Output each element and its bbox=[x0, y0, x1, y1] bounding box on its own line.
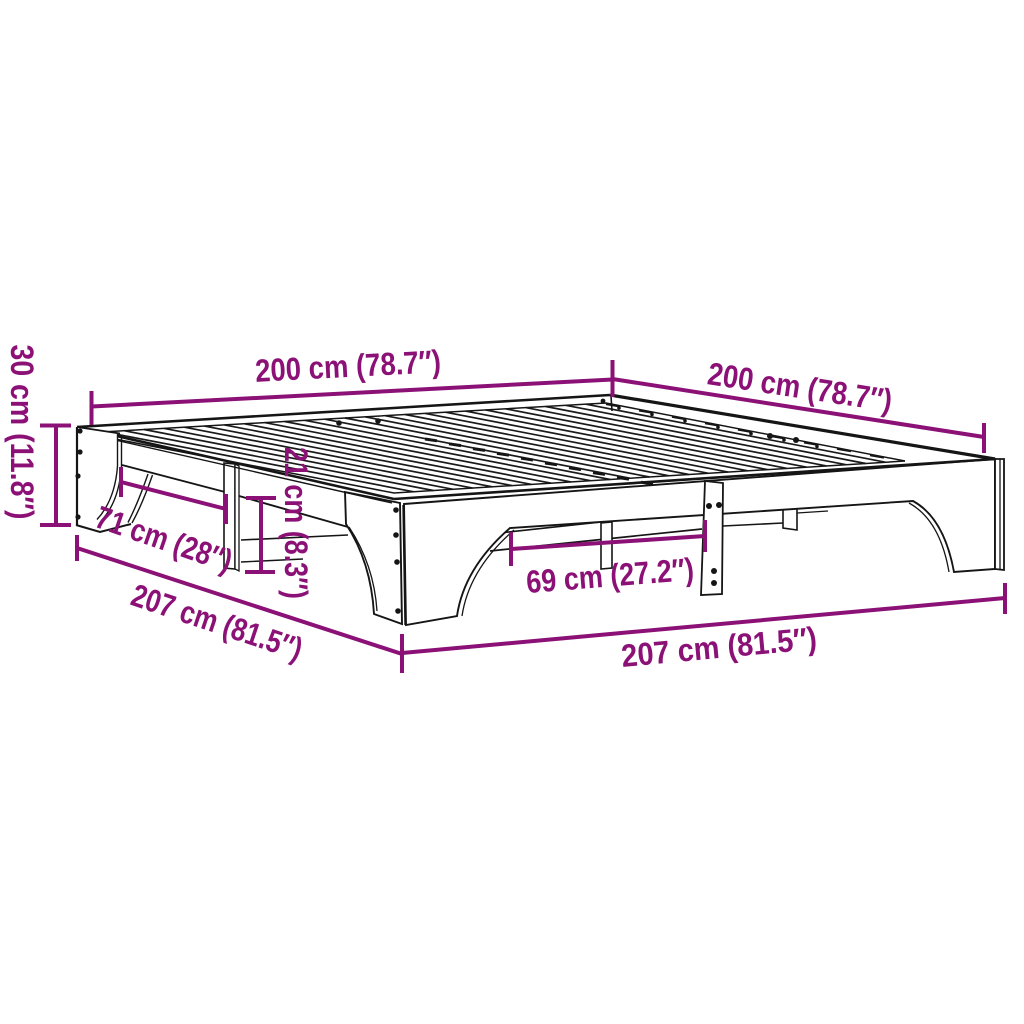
svg-text:21 cm (8.3″): 21 cm (8.3″) bbox=[278, 447, 314, 599]
svg-text:30 cm (11.8″): 30 cm (11.8″) bbox=[4, 345, 40, 520]
